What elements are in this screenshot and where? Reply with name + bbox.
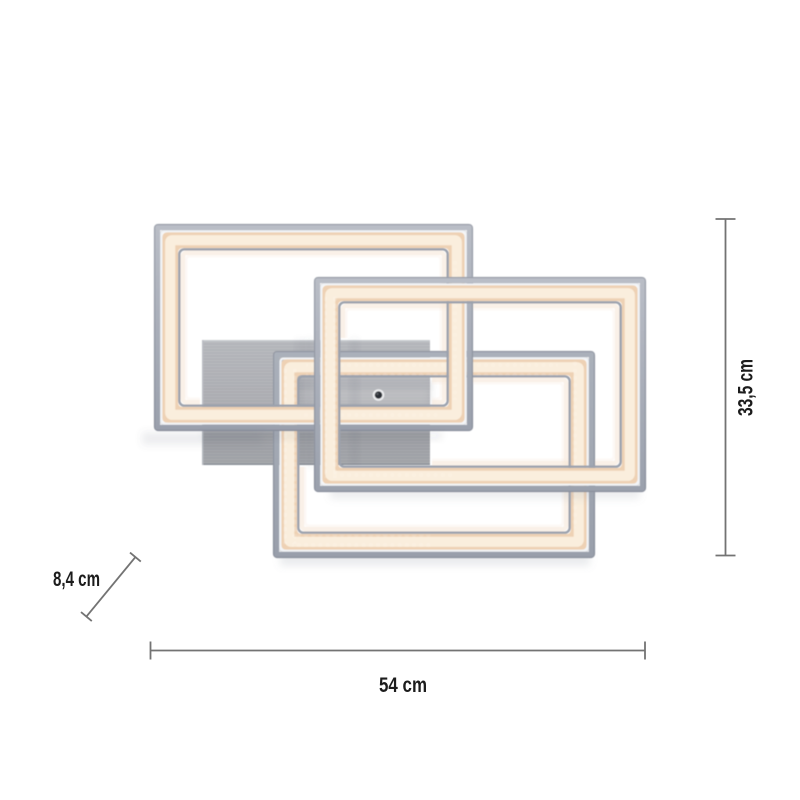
svg-text:33,5 cm: 33,5 cm (734, 359, 758, 416)
svg-text:8,4 cm: 8,4 cm (53, 567, 100, 591)
svg-text:54 cm: 54 cm (379, 673, 427, 697)
